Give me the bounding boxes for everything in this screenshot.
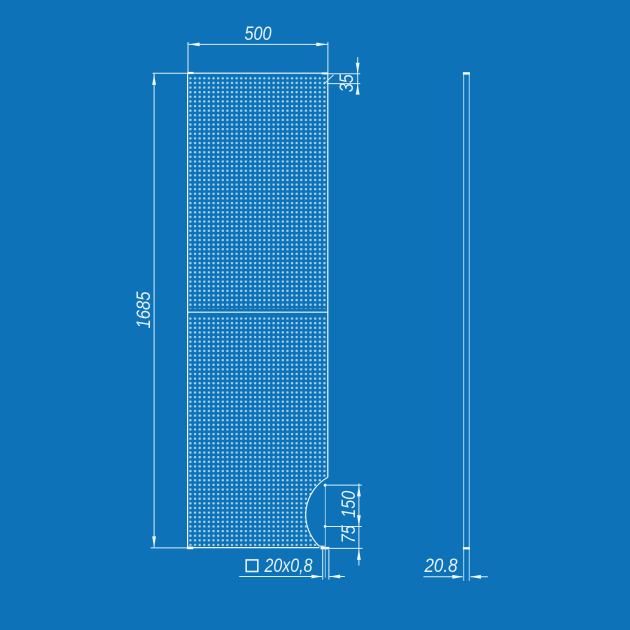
svg-text:150: 150 [339,490,360,517]
svg-text:35: 35 [337,74,358,92]
svg-text:75: 75 [339,525,360,543]
svg-text:1685: 1685 [134,291,155,328]
svg-text:20.8: 20.8 [424,556,458,577]
svg-text:500: 500 [245,24,272,45]
svg-text:20x0,8: 20x0,8 [264,556,313,577]
